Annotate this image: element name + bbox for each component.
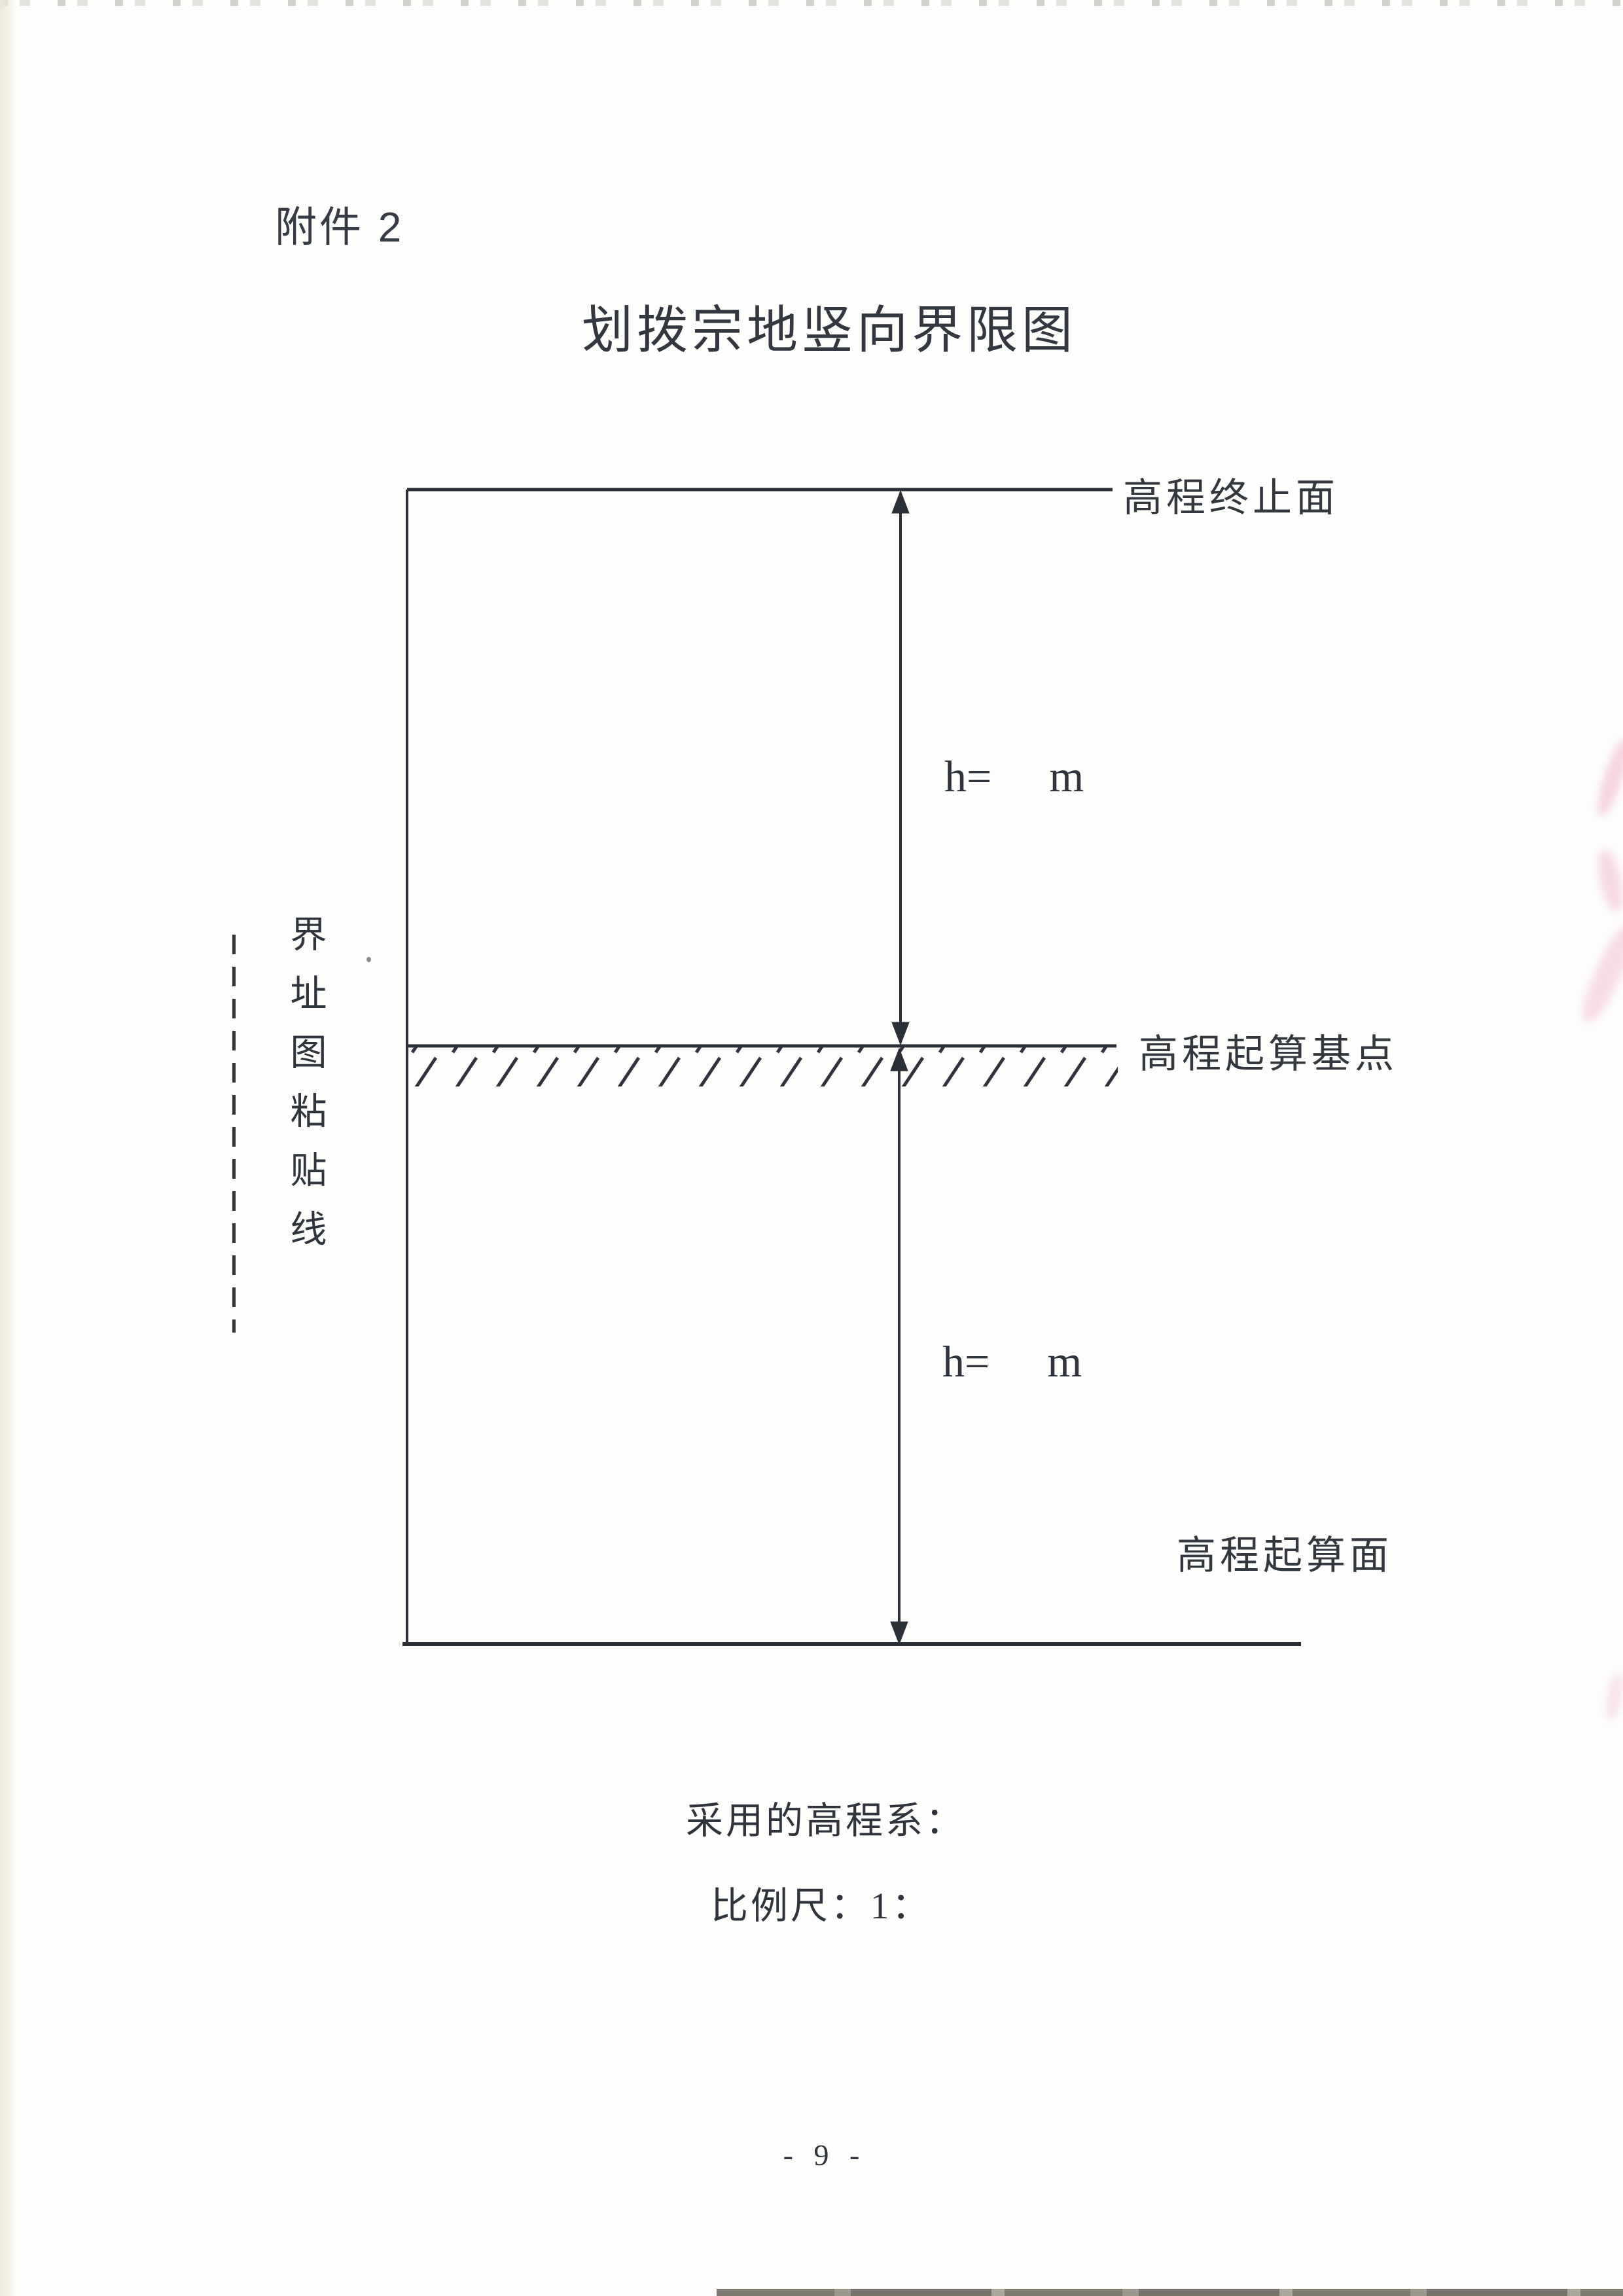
elevation-system-field: 采用的高程系： [686,1791,965,1844]
label-elevation-datum-point: 高程起算基点 [1139,1033,1398,1076]
lower-height-dimension: h= m [942,1339,1082,1384]
scan-speck-artifact [366,957,371,962]
diagram-canvas [0,0,1623,2296]
upper-dimension-arrow [892,491,909,1045]
upper-height-dimension: h= m [944,754,1084,798]
scan-artifact-bottom-edge [717,2289,1623,2296]
lower-height-unit: m [1047,1339,1082,1384]
lower-dimension-arrow [891,1049,908,1644]
label-elevation-end-surface: 高程终止面 [1123,476,1339,520]
scale-field: 比例尺：1： [711,1876,932,1929]
ground-hatching [407,1046,1118,1086]
document-page: 附件 2 划拨宗地竖向界限图 高程终止面 高程起算基点 高程起算面 [0,0,1623,2296]
page-number: - 9 - [0,2138,1623,2172]
upper-height-value: h= [944,754,991,798]
paste-line-caption: 界址图粘贴线 [279,915,332,1268]
label-elevation-base-surface: 高程起算面 [1177,1534,1393,1577]
upper-height-unit: m [1049,754,1084,798]
lower-height-value: h= [942,1339,990,1384]
paste-line-dashed-rule [232,935,236,1333]
